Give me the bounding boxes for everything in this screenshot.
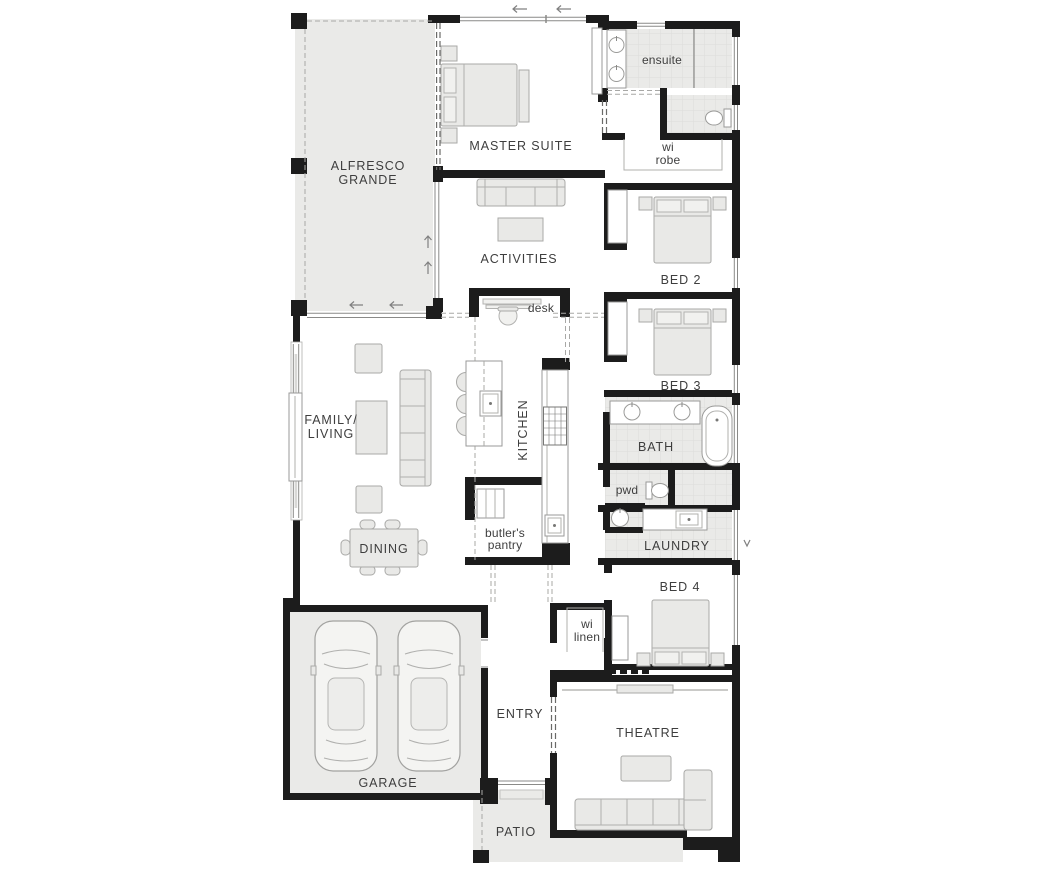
label-theatre: THEATRE: [616, 726, 680, 740]
island-sink-icon: [480, 391, 501, 416]
toilet-icon: [646, 482, 669, 499]
label-alfresco-line2: GRANDE: [339, 173, 398, 187]
label-kitchen: KITCHEN: [516, 399, 530, 460]
label-laundry: LAUNDRY: [644, 539, 710, 553]
activities-furniture: [477, 179, 565, 241]
label-bath: BATH: [638, 440, 674, 454]
sofa: [477, 179, 565, 206]
label-family-line2: LIVING: [308, 427, 354, 441]
floor-plan: ALFRESCO GRANDE MASTER SUITE ensuite wi …: [0, 0, 1040, 880]
stool: [457, 373, 467, 392]
bed-end-bench: [519, 70, 529, 122]
cooktop-icon: [544, 407, 567, 445]
label-bed4: BED 4: [660, 580, 701, 594]
garage-internal-door: [481, 640, 488, 667]
theatre-furniture: [562, 685, 728, 830]
label-master-suite: MASTER SUITE: [469, 139, 572, 153]
floor-plan-drawing: ALFRESCO GRANDE MASTER SUITE ensuite wi …: [0, 0, 1040, 880]
robe: [612, 616, 628, 660]
bed3-furniture: [608, 302, 726, 375]
bathtub-icon: [702, 406, 732, 466]
tv: [617, 685, 673, 693]
label-wi-robe-line2: robe: [656, 153, 681, 167]
label-butlers-line2: pantry: [488, 538, 523, 552]
sofa: [400, 370, 431, 486]
pwd-fixtures: [646, 482, 669, 499]
bed2-furniture: [608, 190, 726, 263]
bedside-table: [441, 46, 457, 61]
coffee-table: [498, 218, 543, 241]
label-wi-linen-line1: wi: [580, 617, 593, 631]
stool: [457, 395, 467, 414]
window-master-top: [460, 15, 586, 23]
label-wi-linen-line2: linen: [574, 630, 600, 644]
label-wi-robe-line1: wi: [661, 140, 674, 154]
master-suite-furniture: [441, 28, 602, 143]
toilet-icon: [706, 109, 732, 127]
label-pwd: pwd: [616, 483, 639, 497]
exterior-tap-mark: [744, 540, 750, 546]
label-patio: PATIO: [496, 825, 536, 839]
laundry-bench: [643, 509, 707, 530]
sliding-door-arrows-top: [513, 6, 571, 13]
label-entry: ENTRY: [497, 707, 544, 721]
master-cabinet: [592, 28, 602, 94]
label-desk: desk: [528, 301, 555, 315]
label-bed3: BED 3: [661, 379, 702, 393]
window-ensuite-top: [637, 21, 665, 29]
label-activities: ACTIVITIES: [480, 252, 557, 266]
label-family-line1: FAMILY/: [304, 413, 357, 427]
pantry-fridge: [477, 489, 504, 518]
stool: [457, 417, 467, 436]
label-garage: GARAGE: [359, 776, 418, 790]
label-bed2: BED 2: [661, 273, 702, 287]
bedside-table: [441, 128, 457, 143]
coffee-table: [356, 401, 387, 454]
armchair: [355, 344, 382, 373]
porch-slab: [550, 838, 683, 862]
label-ensuite: ensuite: [642, 53, 682, 67]
label-alfresco-line1: ALFRESCO: [331, 159, 406, 173]
bench-sink-icon: [545, 515, 564, 536]
side-table: [356, 486, 382, 513]
label-dining: DINING: [359, 542, 408, 556]
ottoman: [621, 756, 671, 781]
